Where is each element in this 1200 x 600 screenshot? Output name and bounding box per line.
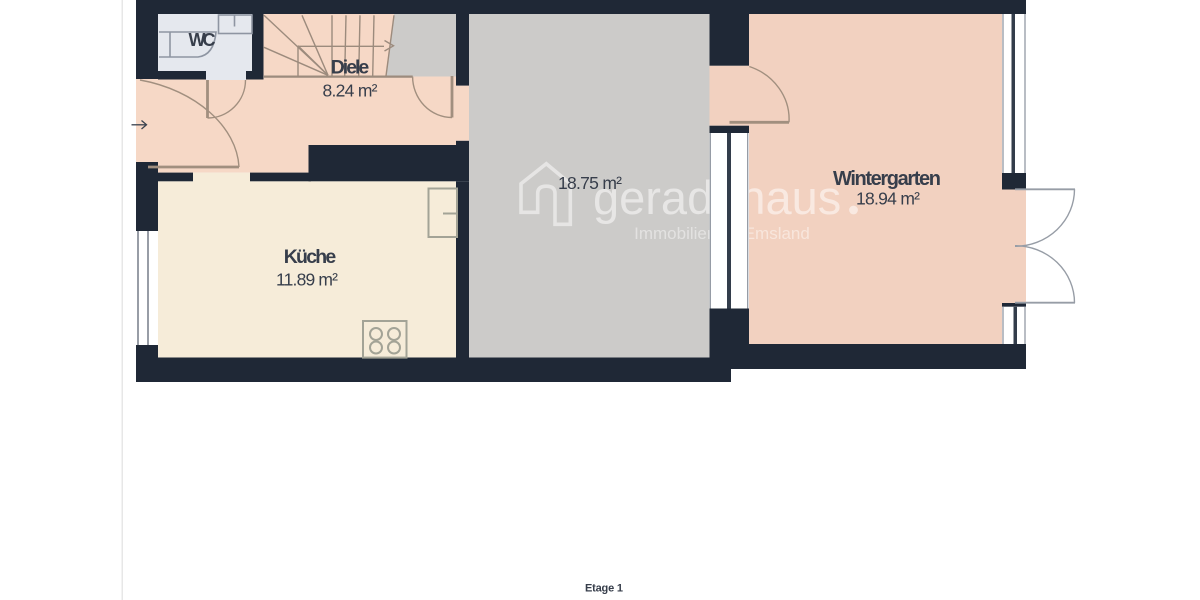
svg-text:Diele: Diele: [331, 57, 370, 79]
svg-text:18.75 m²: 18.75 m²: [558, 173, 622, 193]
svg-text:11.89 m²: 11.89 m²: [276, 269, 338, 289]
svg-text:18.94 m²: 18.94 m²: [856, 188, 920, 208]
svg-text:Wintergarten: Wintergarten: [833, 168, 941, 190]
svg-text:Etage 1: Etage 1: [585, 582, 623, 594]
svg-text:WC: WC: [189, 30, 216, 50]
svg-text:8.24 m²: 8.24 m²: [323, 80, 378, 100]
svg-text:Küche: Küche: [284, 246, 337, 268]
